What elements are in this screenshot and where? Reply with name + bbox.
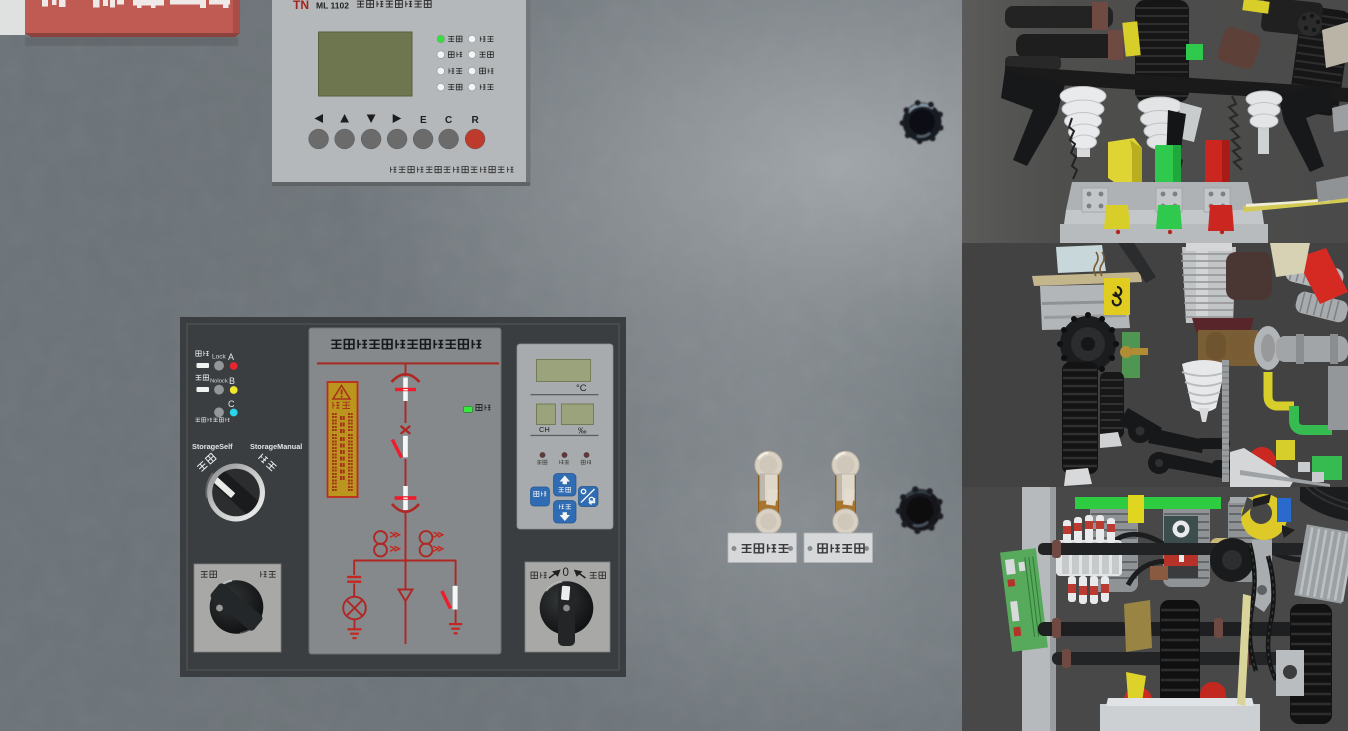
svg-text:TN: TN — [293, 0, 309, 12]
svg-text:Lock: Lock — [212, 354, 226, 361]
svg-text:CH: CH — [539, 425, 550, 434]
svg-text:ML 1102: ML 1102 — [316, 1, 349, 11]
svg-text:B: B — [229, 376, 235, 386]
svg-text:StorageManual: StorageManual — [250, 442, 302, 451]
svg-text:°C: °C — [576, 383, 587, 394]
svg-text:StorageSelf: StorageSelf — [192, 442, 233, 451]
svg-text:C: C — [228, 399, 235, 409]
svg-text:C: C — [445, 115, 452, 126]
svg-text:A: A — [228, 352, 234, 362]
svg-text:‰: ‰ — [578, 426, 587, 436]
svg-text:0: 0 — [563, 567, 569, 579]
svg-text:E: E — [420, 115, 427, 126]
svg-text:R: R — [472, 115, 480, 126]
svg-text:Nolock: Nolock — [210, 379, 228, 385]
